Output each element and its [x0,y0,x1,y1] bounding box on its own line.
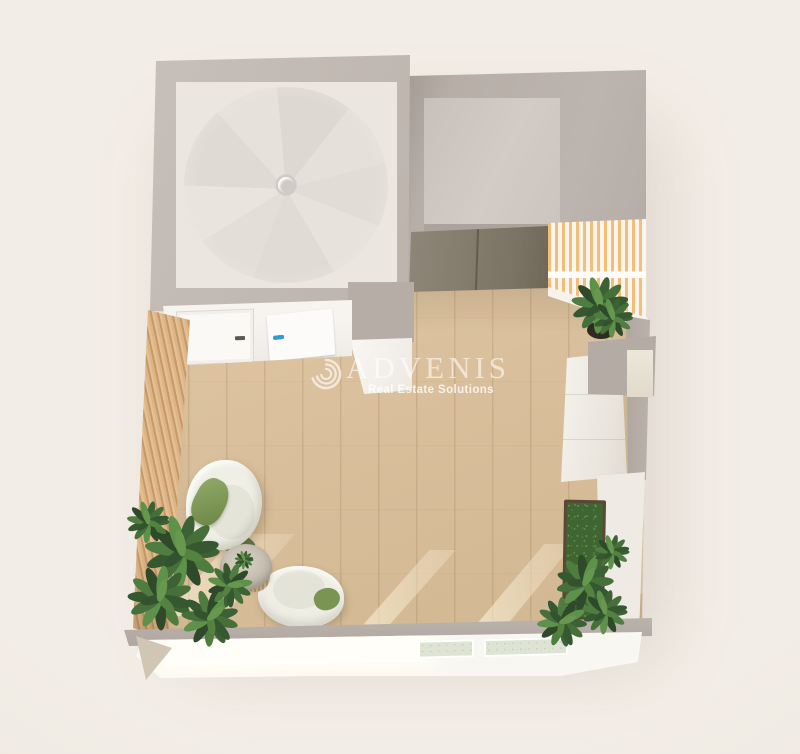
poster-logo-chip [273,335,284,340]
elevator-doors [409,226,549,292]
window-band [136,632,644,692]
staircase-room-floor [176,82,397,288]
floorplan-render: ADVENIS Real Estate Solutions [0,0,800,754]
side-table [220,544,272,590]
sunlit-window [166,635,426,666]
spiral-staircase-fade [176,82,397,288]
skylight-panel [424,98,560,224]
moss-panel [565,503,603,618]
window-pane [418,639,474,658]
corner-wall-top-face [348,282,414,342]
vertical-garden-planter [562,500,606,621]
door-handle [235,336,245,340]
wall-poster [267,309,336,362]
doorway-opening [627,350,653,397]
window-pane [484,637,568,657]
armchair-1 [186,460,262,550]
